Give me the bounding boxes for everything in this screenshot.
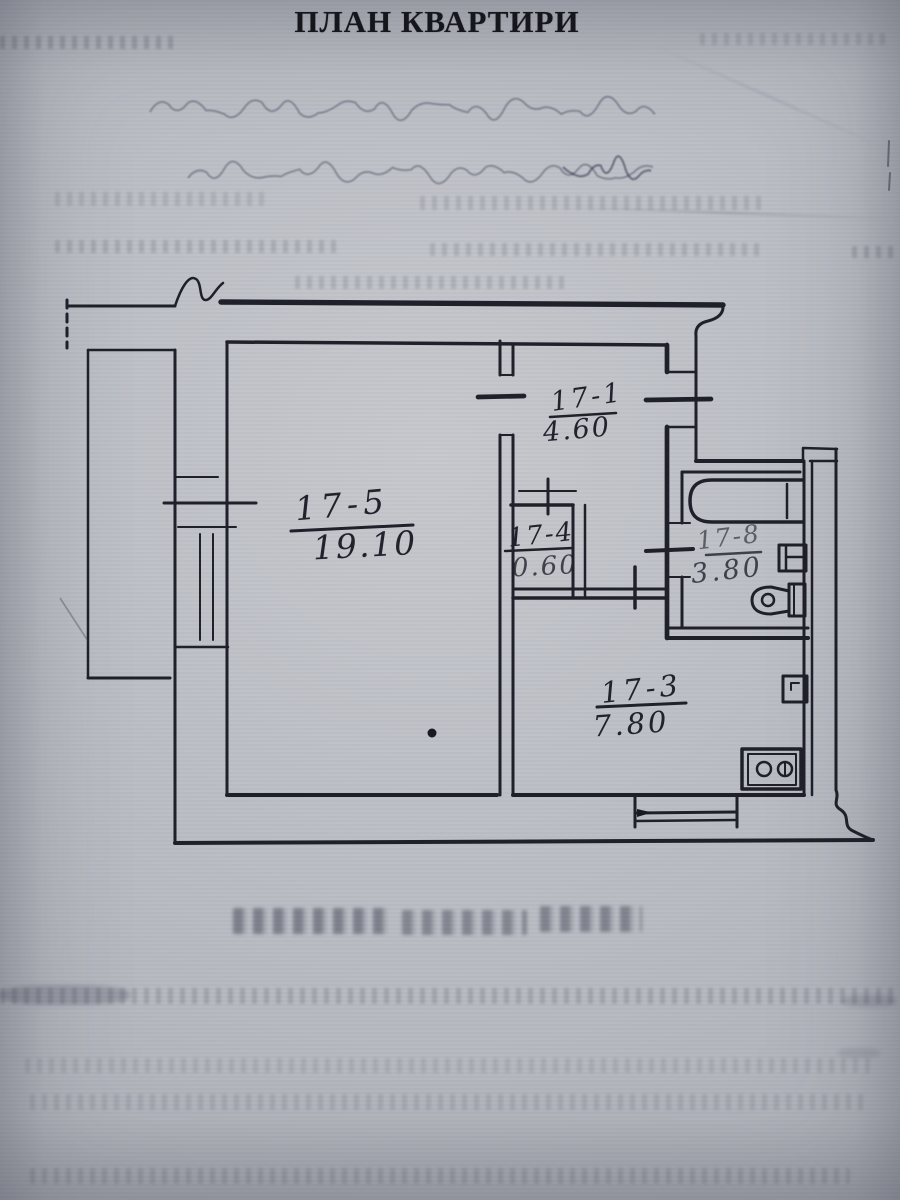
- scratch-mark: [60, 598, 88, 641]
- wall-segment: [175, 840, 873, 843]
- faded-handwriting: [150, 97, 655, 184]
- room-17-1-area: 4.60: [541, 411, 613, 448]
- wall-hook-symbol: [836, 790, 873, 840]
- room-17-8-number: 17-8: [695, 519, 762, 556]
- door-opening-line: [646, 549, 693, 551]
- room-17-3-area: 7.80: [592, 704, 671, 743]
- room-17-1-number: 17-1: [549, 377, 625, 418]
- balcony: [60, 350, 175, 678]
- bathtub-icon: [690, 480, 802, 522]
- room-17-5-number: 17-5: [293, 481, 390, 528]
- wall-segment: [696, 305, 723, 461]
- door-opening-line: [646, 399, 711, 400]
- wall-segment: [227, 342, 667, 345]
- toilet-drain: [762, 594, 774, 606]
- ink-dot: [428, 729, 437, 738]
- stove-burner: [757, 762, 771, 776]
- vent-duct-mark: [791, 683, 799, 690]
- wall-segment: [803, 448, 837, 461]
- room-labels: 17-5 19.10 17-1 4.60 17-4 0.60 17-8 3.80…: [291, 377, 764, 743]
- handwriting-line: [150, 97, 655, 121]
- handwriting-line: [188, 162, 653, 184]
- entry-door-opening: [646, 345, 711, 638]
- room-17-4-area: 0.60: [511, 550, 578, 583]
- room-17-5-area: 19.10: [312, 523, 418, 567]
- door-opening-line: [478, 396, 524, 397]
- window-line: [637, 820, 735, 821]
- scanned-floor-plan-page: ПЛАН КВАРТИРИ: [0, 0, 900, 1200]
- door-jamb-tick: [500, 375, 513, 435]
- toilet-icon: [752, 587, 789, 614]
- wall-segment: [221, 302, 723, 305]
- wall-break-symbol: [175, 278, 223, 306]
- room-17-8-area: 3.80: [689, 552, 764, 590]
- floor-plan-drawing: 17-5 19.10 17-1 4.60 17-4 0.60 17-8 3.80…: [0, 0, 900, 1200]
- balcony-door-window-block: [164, 477, 256, 647]
- edge-mark: [888, 141, 890, 190]
- window-arrow-mark: [637, 809, 652, 817]
- sink-inner-line: [786, 545, 804, 570]
